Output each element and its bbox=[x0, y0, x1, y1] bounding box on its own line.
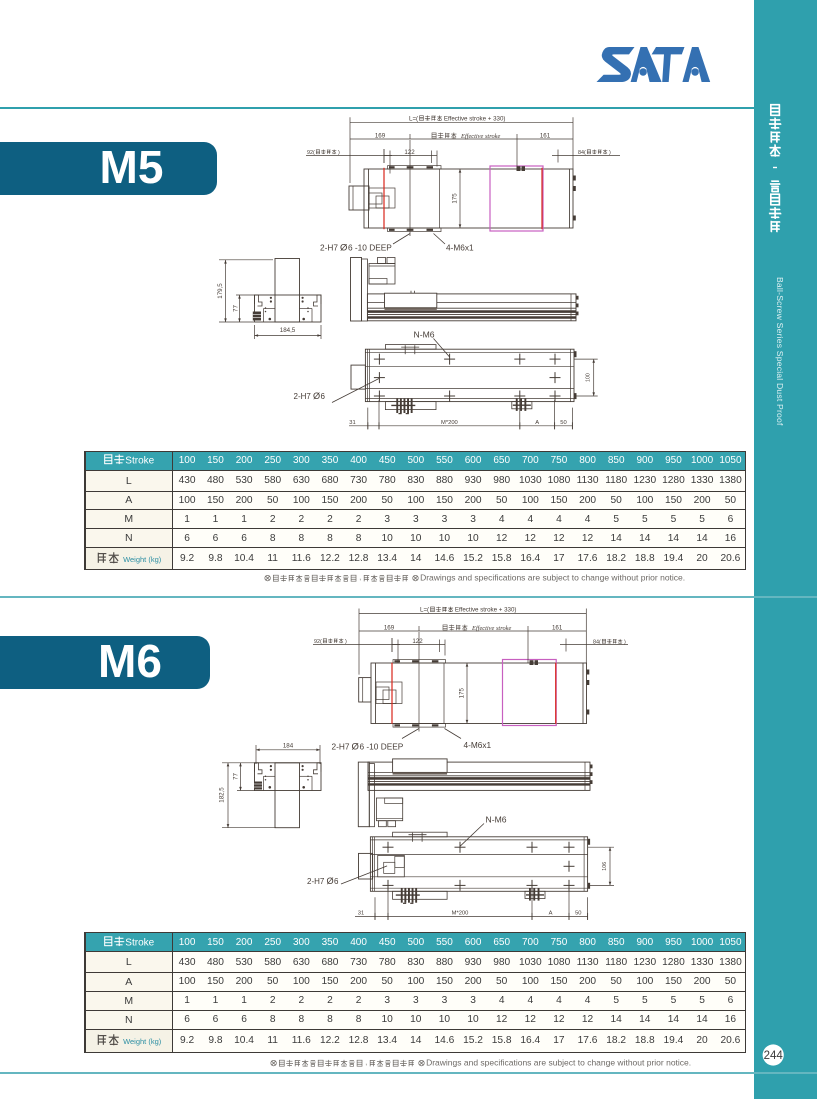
svg-text:2-H7: 2-H7 bbox=[332, 742, 350, 752]
svg-text:Ø: Ø bbox=[327, 876, 334, 886]
svg-text:50: 50 bbox=[575, 911, 581, 917]
svg-text:Effective stroke + 330): Effective stroke + 330) bbox=[455, 607, 517, 614]
svg-text:L=(: L=( bbox=[420, 607, 430, 614]
svg-text:77: 77 bbox=[233, 773, 240, 780]
svg-text:N-M6: N-M6 bbox=[414, 330, 435, 340]
svg-text:84(: 84( bbox=[578, 150, 586, 156]
svg-text:122: 122 bbox=[404, 149, 415, 156]
svg-text:31: 31 bbox=[358, 911, 364, 917]
svg-text:): ) bbox=[338, 150, 340, 156]
svg-text:2-H7: 2-H7 bbox=[307, 877, 325, 886]
svg-text:100: 100 bbox=[586, 373, 592, 382]
svg-text:Ø: Ø bbox=[340, 243, 348, 254]
svg-text:4-M6x1: 4-M6x1 bbox=[464, 740, 492, 750]
svg-text:L=(: L=( bbox=[409, 115, 419, 122]
svg-text:106: 106 bbox=[602, 862, 608, 871]
svg-text:M*200: M*200 bbox=[441, 420, 458, 426]
svg-text:244: 244 bbox=[764, 1050, 784, 1062]
svg-text:2-H7: 2-H7 bbox=[294, 392, 312, 401]
svg-text:,: , bbox=[359, 574, 361, 581]
svg-text:6 -10 DEEP: 6 -10 DEEP bbox=[348, 243, 392, 253]
svg-text:179,5: 179,5 bbox=[217, 283, 224, 299]
svg-text:50: 50 bbox=[560, 420, 566, 426]
svg-text:122: 122 bbox=[412, 638, 423, 645]
svg-text:161: 161 bbox=[540, 133, 551, 140]
svg-text:184,5: 184,5 bbox=[280, 327, 296, 334]
svg-text:175: 175 bbox=[459, 688, 466, 699]
svg-text:A: A bbox=[535, 420, 539, 426]
svg-text:Ball-Screw Series Special Dust: Ball-Screw Series Special Dust Proof bbox=[775, 277, 785, 426]
svg-text:): ) bbox=[624, 639, 626, 645]
svg-text:Effective stroke: Effective stroke bbox=[460, 133, 500, 140]
svg-text:31: 31 bbox=[349, 420, 355, 426]
svg-text:6 -10 DEEP: 6 -10 DEEP bbox=[360, 742, 404, 752]
svg-text:): ) bbox=[345, 639, 347, 645]
svg-text:175: 175 bbox=[452, 193, 459, 204]
svg-text:A: A bbox=[549, 911, 553, 917]
svg-text:169: 169 bbox=[375, 133, 386, 140]
svg-text:Effective stroke + 330): Effective stroke + 330) bbox=[444, 115, 506, 122]
svg-text:6: 6 bbox=[321, 392, 326, 401]
svg-text:,: , bbox=[365, 1059, 367, 1066]
svg-text:92(: 92( bbox=[307, 150, 315, 156]
svg-text:Drawings and specifications ar: Drawings and specifications are subject … bbox=[426, 1058, 691, 1068]
svg-text:77: 77 bbox=[233, 305, 240, 312]
svg-text:184: 184 bbox=[283, 742, 294, 749]
svg-text:Ø: Ø bbox=[352, 742, 360, 753]
svg-text:2-H7: 2-H7 bbox=[320, 243, 338, 253]
svg-text:84(: 84( bbox=[593, 639, 601, 645]
svg-text:Effective stroke: Effective stroke bbox=[471, 625, 511, 632]
svg-text:4-M6x1: 4-M6x1 bbox=[446, 243, 474, 253]
svg-text:N-M6: N-M6 bbox=[486, 815, 507, 825]
svg-text:): ) bbox=[609, 150, 611, 156]
svg-text:169: 169 bbox=[384, 625, 395, 632]
svg-text:182,5: 182,5 bbox=[218, 787, 225, 803]
svg-text:Ø: Ø bbox=[313, 391, 320, 401]
svg-text:92(: 92( bbox=[314, 639, 322, 645]
svg-text:M*200: M*200 bbox=[452, 911, 469, 917]
svg-text:Drawings and specifications ar: Drawings and specifications are subject … bbox=[420, 573, 685, 583]
svg-text:161: 161 bbox=[552, 625, 563, 632]
svg-text:6: 6 bbox=[334, 877, 339, 886]
